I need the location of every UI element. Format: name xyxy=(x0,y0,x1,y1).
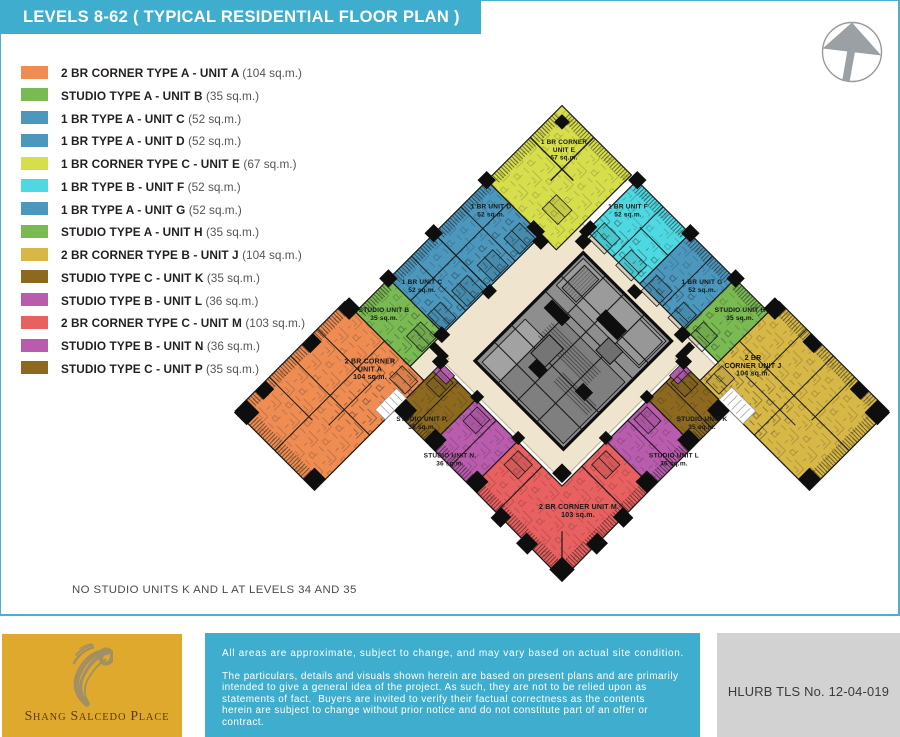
svg-text:1 BR UNIT G: 1 BR UNIT G xyxy=(682,279,723,286)
svg-text:52 sq.m.: 52 sq.m. xyxy=(688,287,716,294)
svg-text:35 sq.m.: 35 sq.m. xyxy=(726,315,754,322)
svg-text:2 BR CORNER: 2 BR CORNER xyxy=(345,359,395,366)
svg-text:STUDIO UNIT B: STUDIO UNIT B xyxy=(359,307,410,314)
svg-text:CORNER UNIT J: CORNER UNIT J xyxy=(724,363,781,370)
svg-text:104 sq.m.: 104 sq.m. xyxy=(353,374,387,381)
svg-text:STUDIO UNIT N,: STUDIO UNIT N, xyxy=(424,453,477,460)
svg-text:1 BR UNIT D: 1 BR UNIT D xyxy=(471,204,512,211)
svg-text:103 sq.m.: 103 sq.m. xyxy=(561,512,595,519)
svg-text:1 BR UNIT C: 1 BR UNIT C xyxy=(402,279,443,286)
svg-text:36 sq.m.: 36 sq.m. xyxy=(660,460,688,467)
svg-text:STUDIO UNIT L: STUDIO UNIT L xyxy=(649,453,699,460)
svg-text:STUDIO UNIT H: STUDIO UNIT H xyxy=(715,307,766,314)
svg-text:1 BR CORNER: 1 BR CORNER xyxy=(541,139,587,146)
svg-text:STUDIO UNIT P,: STUDIO UNIT P, xyxy=(396,416,447,423)
svg-text:67 sq.m.: 67 sq.m. xyxy=(550,155,577,162)
svg-text:35 sq.m.: 35 sq.m. xyxy=(370,315,398,322)
svg-text:2 BR CORNER UNIT M: 2 BR CORNER UNIT M xyxy=(539,504,617,511)
svg-text:UNIT A: UNIT A xyxy=(358,366,382,373)
svg-text:52 sq.m.: 52 sq.m. xyxy=(408,287,436,294)
svg-text:2 BR: 2 BR xyxy=(745,355,762,362)
svg-text:1 BR UNIT F: 1 BR UNIT F xyxy=(608,204,648,211)
svg-text:STUDIO UNIT K: STUDIO UNIT K xyxy=(677,416,728,423)
svg-text:52 sq.m.: 52 sq.m. xyxy=(614,211,642,218)
svg-text:52 sq.m.: 52 sq.m. xyxy=(477,211,505,218)
svg-text:UNIT E: UNIT E xyxy=(553,147,576,154)
svg-text:35 sq.m.: 35 sq.m. xyxy=(408,424,436,431)
svg-text:36 sq.m.: 36 sq.m. xyxy=(436,460,464,467)
svg-text:35 sq.m.: 35 sq.m. xyxy=(688,424,716,431)
svg-text:104 sq.m.: 104 sq.m. xyxy=(736,371,770,378)
